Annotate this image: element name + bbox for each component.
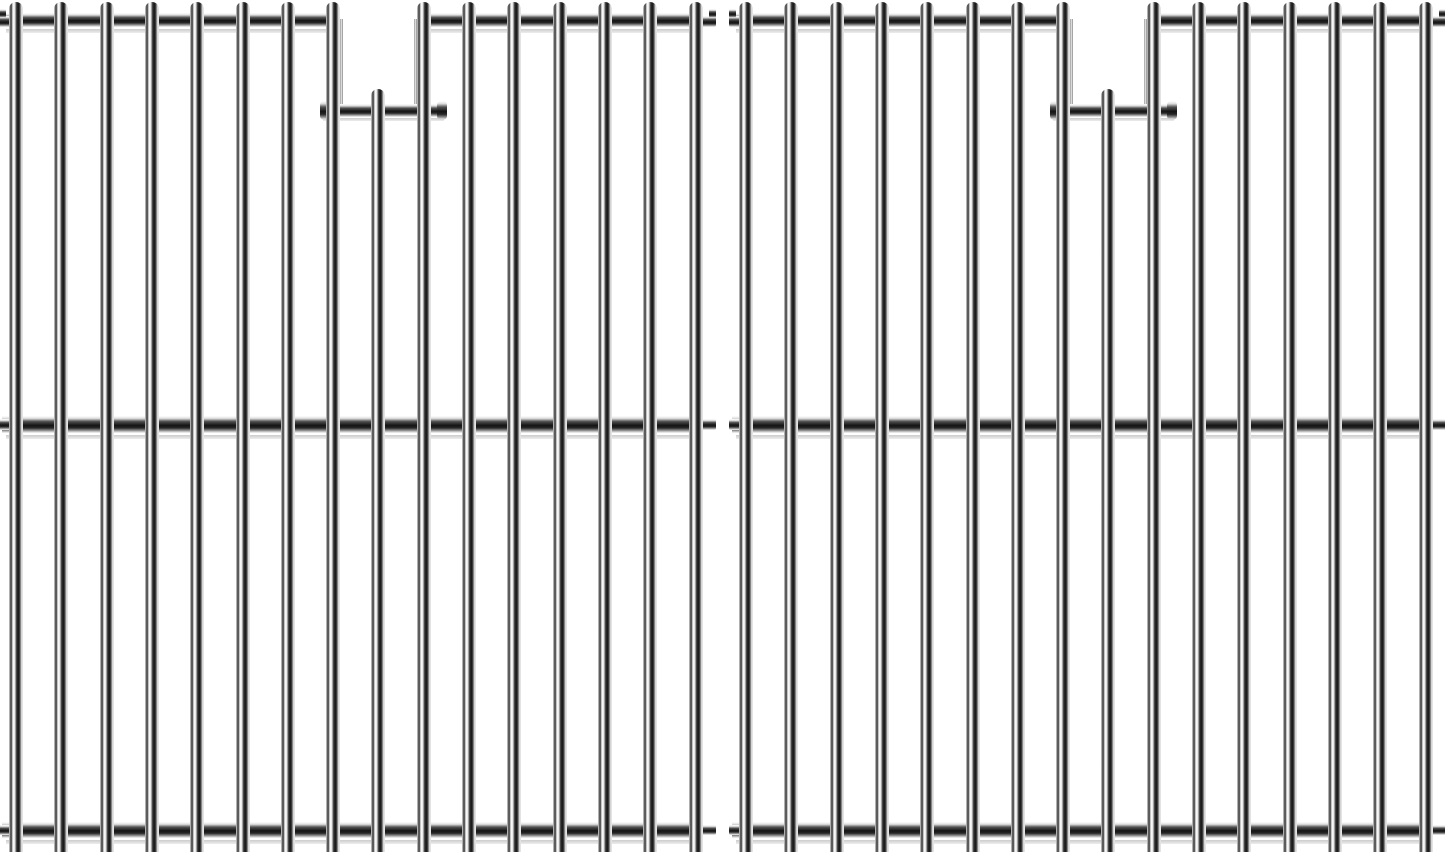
grate-rod [417,2,431,852]
grate-rod [875,2,889,852]
grate-rod [598,2,612,852]
grate-rod-short [1101,89,1115,852]
grate-rod-short [371,89,385,852]
grate-rod [739,2,753,852]
middle-bar-end-tab [1431,419,1445,430]
notch-corner-connector [1070,19,1073,106]
top-bar-end-hook [0,9,6,18]
grate-rod [784,2,798,852]
grate-rod [100,2,114,852]
bottom-bar-end-tab [701,825,716,835]
grate-rod [1283,2,1297,852]
top-bar-end-hook [1439,9,1445,18]
notch-corner-connector [340,19,343,106]
product-photo-canvas [0,0,1445,852]
grate-rod [1192,2,1206,852]
grate-rod [190,2,204,852]
grate-rod [966,2,980,852]
grate-panel-right [732,0,1445,852]
grate-rod [830,2,844,852]
grate-panel-left [2,0,717,852]
grate-rod [1147,2,1161,852]
grate-rod [1011,2,1025,852]
grate-rod [1056,2,1070,852]
top-bar-end-hook [709,9,716,18]
grate-rod [1237,2,1251,852]
top-bar-end-hook [729,9,736,18]
grate-rod [145,2,159,852]
grate-rod [643,2,657,852]
grate-rod [1328,2,1342,852]
grate-rod [553,2,567,852]
grate-rod [281,2,295,852]
grate-rod [920,2,934,852]
grate-rod [236,2,250,852]
grate-rod [689,2,703,852]
bottom-bar-end-tab [1431,825,1445,835]
grate-rod [54,2,68,852]
grate-rod [326,2,340,852]
grate-rod [9,2,23,852]
middle-bar-end-tab [701,419,716,430]
grate-rod [507,2,521,852]
grate-rod [1419,2,1433,852]
grate-rod [1373,2,1387,852]
grate-rod [462,2,476,852]
